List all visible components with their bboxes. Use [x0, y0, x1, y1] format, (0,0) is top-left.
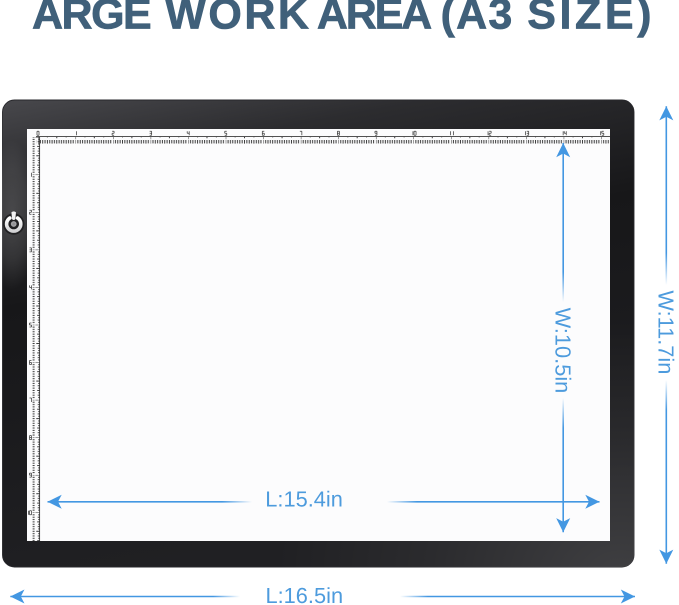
svg-text:(A3: (A3 [441, 0, 514, 39]
svg-text:L:15.4in: L:15.4in [265, 486, 343, 511]
svg-text:SIZE): SIZE) [527, 0, 655, 39]
svg-text:WORK: WORK [165, 0, 311, 39]
svg-text:W:11.7in: W:11.7in [654, 290, 679, 374]
svg-text:ARGE: ARGE [32, 0, 150, 39]
svg-text:W:10.5in: W:10.5in [550, 308, 575, 394]
svg-text:L:16.5in: L:16.5in [266, 583, 344, 605]
svg-text:AREA: AREA [317, 0, 431, 39]
